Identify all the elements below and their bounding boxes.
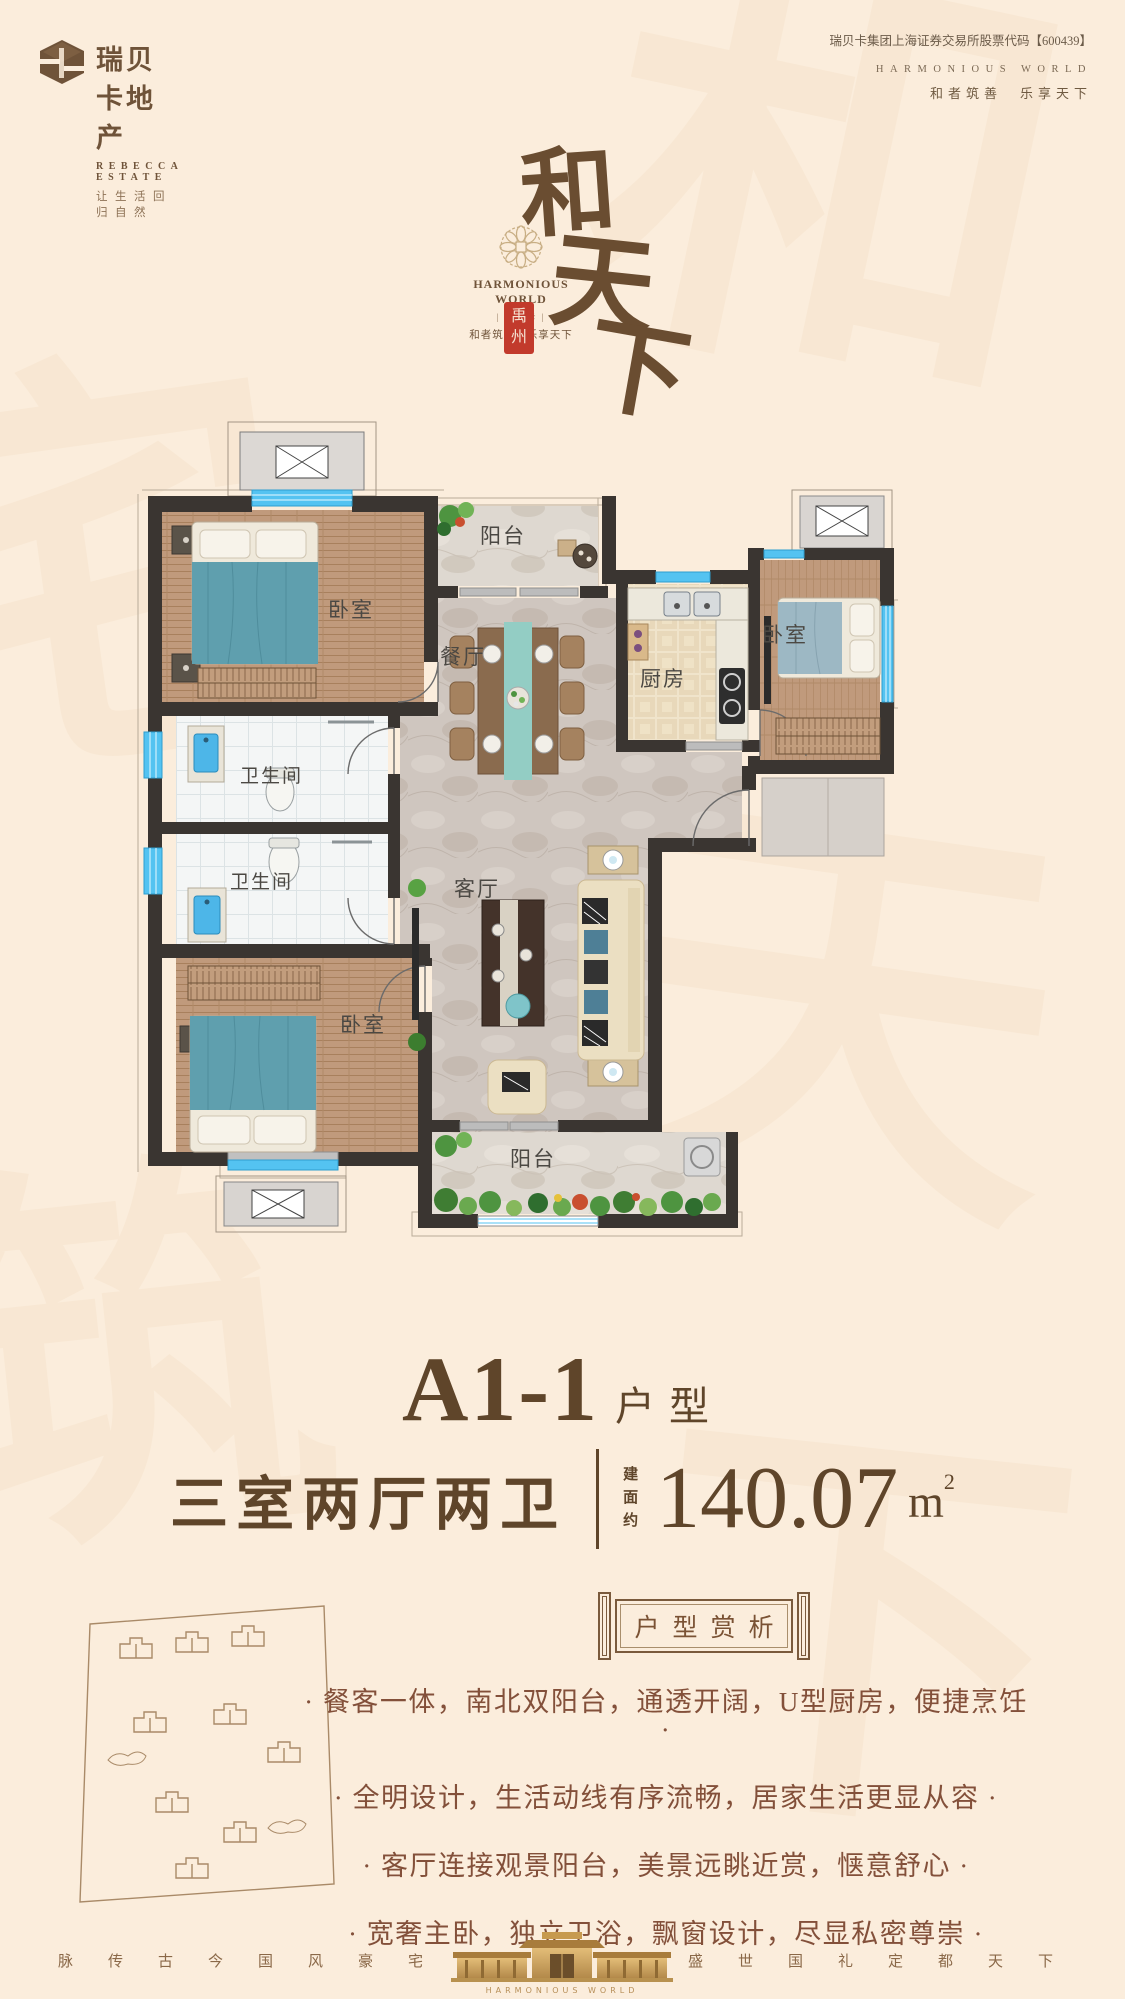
- logo-slogan: 让生活回归自然: [96, 188, 183, 220]
- model-suffix: 户型: [615, 1384, 723, 1429]
- scroll-roller-right-icon: [797, 1592, 810, 1660]
- bedroom-tl-furniture: [172, 522, 318, 698]
- footer-left-motto: 脉传古今国风豪宅: [58, 1950, 458, 1971]
- label-bedroom-master: 卧室: [340, 1013, 386, 1037]
- rebecca-logo-icon: [38, 40, 86, 84]
- stock-code-line: 瑞贝卡集团上海证券交易所股票代码【600439】: [829, 30, 1092, 49]
- feature-line: · 餐客一体，南北双阳台，通透开阔，U型厨房，便捷烹饪 ·: [296, 1688, 1036, 1744]
- header-right: 瑞贝卡集团上海证券交易所股票代码【600439】 HARMONIOUS WORL…: [829, 30, 1092, 102]
- feature-line: · 客厅连接观景阳台，美景远眺近赏，惬意舒心 ·: [296, 1852, 1036, 1880]
- label-dining: 餐厅: [440, 645, 486, 669]
- logo-en: REBECCA ESTATE: [96, 161, 183, 183]
- scroll-roller-left-icon: [598, 1592, 611, 1660]
- model-name: A1-1: [402, 1338, 599, 1440]
- feature-line: · 全明设计，生活动线有序流畅，居家生活更显从容 ·: [296, 1784, 1036, 1812]
- label-bedroom-tl: 卧室: [328, 598, 374, 622]
- label-balcony-top: 阳台: [480, 524, 526, 548]
- medallion-icon: [498, 224, 544, 270]
- label-balcony-bottom: 阳台: [510, 1147, 556, 1171]
- label-kitchen: 厨房: [640, 667, 686, 691]
- shaft-top-right: [792, 490, 892, 552]
- bedroom-right-furniture: [764, 598, 880, 754]
- seal-char: 州: [511, 328, 527, 349]
- shaft-bottom: [216, 1176, 346, 1232]
- siteplan-buildings: [120, 1626, 300, 1878]
- bedroom-master-furniture: [180, 966, 320, 1152]
- banner-text: 户型赏析: [634, 1608, 786, 1644]
- footer-right-motto: 盛世国礼定都天下: [688, 1950, 1088, 1971]
- footer-center-en: HARMONIOUS WORLD: [447, 1986, 677, 1995]
- yuzhou-seal: 禹 州: [504, 302, 534, 354]
- seal-char: 禹: [511, 307, 527, 328]
- floorplan-svg: 卧室 阳台 餐厅 厨房 卧室 卫生间 卫生间 客厅 卧室 阳台: [128, 410, 898, 1242]
- banner-scroll: 户型赏析: [598, 1594, 810, 1658]
- label-living: 客厅: [454, 877, 500, 901]
- header-right-cn: 和者筑善 乐享天下: [829, 83, 1092, 102]
- model-title: A1-1户型: [0, 1336, 1125, 1442]
- logo-name: 瑞贝卡地产: [96, 38, 183, 155]
- area-superscript: 2: [944, 1469, 955, 1494]
- banner-panel: 户型赏析: [615, 1599, 793, 1653]
- label-bedroom-right: 卧室: [762, 623, 808, 647]
- area-value: 140.07: [656, 1448, 898, 1549]
- divider: [596, 1449, 599, 1549]
- label-bath1: 卫生间: [240, 765, 303, 787]
- area-unit: m2: [908, 1469, 955, 1528]
- header-right-en: HARMONIOUS WORLD: [829, 64, 1092, 75]
- area-unit-letter: m: [908, 1476, 944, 1527]
- layout-text: 三室两厅两卫: [170, 1457, 566, 1541]
- poster-page: 和 宅 天 筑 下 瑞贝卡地产 REBECCA ESTATE 让生活回归自然 瑞…: [0, 0, 1125, 1999]
- area-row: 三室两厅两卫 建面约 140.07 m2: [0, 1448, 1125, 1549]
- shaft-top-left: [228, 422, 376, 496]
- footer-gate-icon: [447, 1930, 677, 1982]
- label-bath2: 卫生间: [230, 871, 293, 893]
- area-prefix: 建面约: [623, 1464, 640, 1534]
